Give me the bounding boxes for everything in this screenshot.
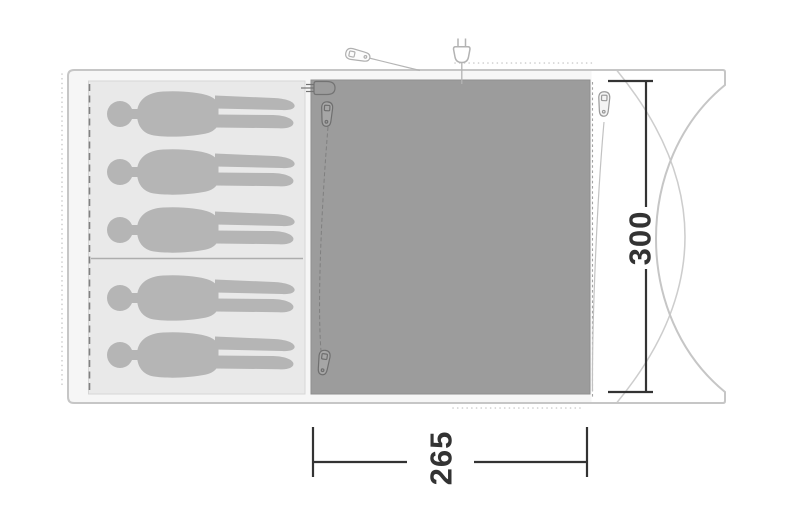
floorplan-canvas: 300 265 (0, 0, 800, 520)
front-canopy-area (592, 71, 727, 402)
dimension-width-label: 265 (424, 431, 459, 486)
zipper-pull-icon-outside (345, 47, 371, 63)
zipper-pull-icon-front (598, 92, 610, 117)
zipper-leader-line (369, 58, 420, 71)
tent-floorplan-diagram: 300 265 (0, 0, 800, 520)
dimension-depth-label: 300 (623, 211, 658, 266)
living-area (311, 80, 590, 394)
zipper-pull-icon-living-top (321, 102, 333, 127)
